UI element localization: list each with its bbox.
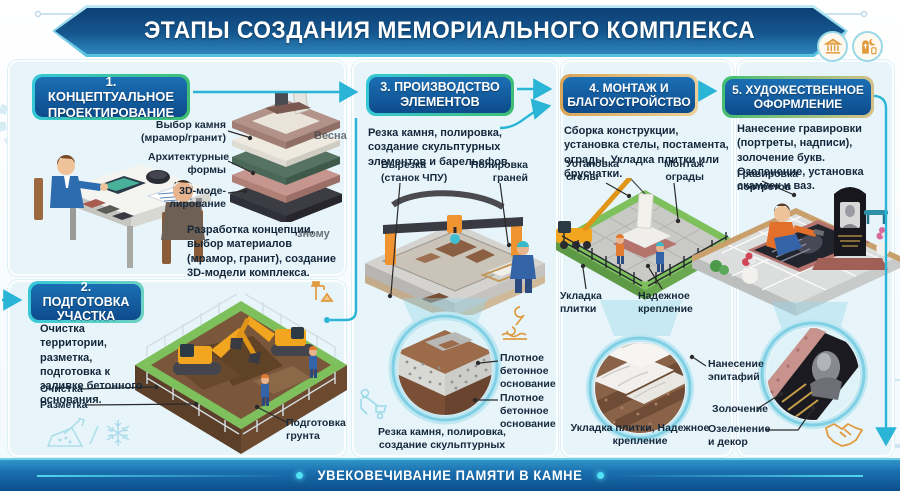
label-epitaph: Нанесение эпитафий xyxy=(708,358,764,384)
section-4-caption: Укладка плитки, Надежное крепление xyxy=(570,422,710,448)
badge-section-4: 4. МОНТАЖ И БЛАГОУСТРОЙСТВО xyxy=(560,74,698,116)
badge-section-4-label: 4. МОНТАЖ И БЛАГОУСТРОЙСТВО xyxy=(563,77,695,113)
badge-section-1-label: 1. КОНЦЕПТУАЛЬНОЕ ПРОЕКТИРОВАНИЕ xyxy=(35,77,187,117)
badge-section-3: 3. ПРОИЗВОДСТВО ЭЛЕМЕНТОВ xyxy=(366,74,514,116)
watermark-znomu: зному xyxy=(297,228,330,240)
handshake-icon xyxy=(824,420,864,450)
wrench-icon xyxy=(500,303,530,341)
footer-line-left xyxy=(37,475,287,477)
label-dense-concrete-2: Плотное бетонное основание xyxy=(500,392,562,430)
label-3d-modeling: 3D-моде-лирование xyxy=(160,185,226,211)
label-stone-choice: Выбор камня (мрамор/гранит) xyxy=(126,119,226,145)
label-portrait-engraving: Гравировка портретов xyxy=(737,168,801,194)
badge-section-3-label: 3. ПРОИЗВОДСТВО ЭЛЕМЕНТОВ xyxy=(369,77,511,113)
label-clearing: Очистка xyxy=(40,383,100,396)
label-soil-preparation: Подготовка грунта xyxy=(286,417,356,443)
label-dense-concrete-1: Плотное бетонное основание xyxy=(500,352,562,390)
snowflake-icon xyxy=(104,418,132,448)
label-stele-installation: Установка стелы xyxy=(566,158,628,184)
header-banner: ЭТАПЫ СОЗДАНИЯ МЕМОРИАЛЬНОГО КОМПЛЕКСА xyxy=(55,8,845,54)
badge-section-2: 2. ПОДГОТОВКА УЧАСТКА xyxy=(28,281,144,323)
label-secure-fastening: Надежное крепление xyxy=(638,290,708,316)
badge-section-5-label: 5. ХУДОЖЕСТВЕННОЕ ОФОРМЛЕНИЕ xyxy=(725,79,871,115)
label-architectural-forms: Архитектурные формы xyxy=(148,151,226,177)
footer-dot-left xyxy=(296,472,303,479)
footer-line-right xyxy=(613,475,863,477)
label-fence-installation: Монтаж ограды xyxy=(648,158,704,184)
infographic-poster: ЭТАПЫ СОЗДАНИЯ МЕМОРИАЛЬНОГО КОМПЛЕКСА 1… xyxy=(0,0,900,491)
badge-section-1: 1. КОНЦЕПТУАЛЬНОЕ ПРОЕКТИРОВАНИЕ xyxy=(32,74,190,120)
worker-cart-icon xyxy=(356,386,390,420)
label-landscaping: Озеленение и декор xyxy=(708,423,772,449)
label-marking: Разметка xyxy=(40,399,110,412)
label-cnc-cutting: Вырезка (станок ЧПУ) xyxy=(381,159,451,185)
footer-title: УВЕКОВЕЧИВАНИЕ ПАМЯТИ В КАМНЕ xyxy=(318,468,583,483)
footer-dot-right xyxy=(597,472,604,479)
headstone-religions-icon xyxy=(852,31,883,62)
section-3-caption: Резка камня, полировка, создание скульпт… xyxy=(378,426,506,452)
label-gilding: Золочение xyxy=(712,403,764,416)
stone-layers-illustration xyxy=(225,92,347,222)
watermark-vesna: Весна xyxy=(314,130,347,142)
badge-section-5: 5. ХУДОЖЕСТВЕННОЕ ОФОРМЛЕНИЕ xyxy=(722,76,874,118)
construction-crane-icon xyxy=(308,280,334,306)
label-tile-laying: Укладка плитки xyxy=(560,290,614,316)
badge-section-2-label: 2. ПОДГОТОВКА УЧАСТКА xyxy=(31,284,141,320)
page-title: ЭТАПЫ СОЗДАНИЯ МЕМОРИАЛЬНОГО КОМПЛЕКСА xyxy=(145,17,756,45)
label-edge-polishing: Полировка граней xyxy=(468,159,528,185)
classical-building-icon xyxy=(817,31,848,62)
footer-banner: УВЕКОВЕЧИВАНИЕ ПАМЯТИ В КАМНЕ xyxy=(0,458,900,491)
